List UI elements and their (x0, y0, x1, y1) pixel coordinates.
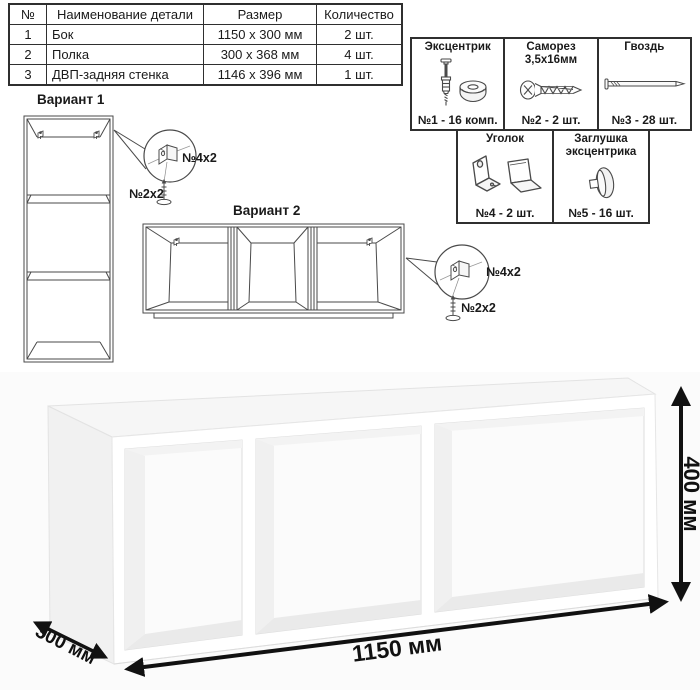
screw-detail-icon (157, 180, 171, 205)
part-number: 1 (9, 25, 47, 45)
screw-detail-icon (446, 296, 460, 321)
hardware-title-line2: эксцентрика (566, 146, 637, 159)
photo-background (0, 372, 700, 690)
corner-bracket-detail-icon (159, 145, 177, 164)
hardware-count: №4 - 2 шт. (476, 207, 535, 220)
variant2-screw-label: №2х2 (461, 301, 496, 315)
hardware-cell-screw: Саморез 3,5х16мм №2 - 2 шт. (503, 37, 598, 131)
width-dimension-label: 1150 мм (351, 629, 444, 666)
hanger-bracket-icon (38, 131, 99, 139)
variant2-callout (406, 245, 489, 321)
part-number: 3 (9, 65, 47, 86)
cam-cap-icon (571, 158, 631, 207)
hardware-cell-cam-fitting: Эксцентрик (410, 37, 505, 131)
table-header-row: № Наименование детали Размер Количество (9, 4, 402, 25)
part-size: 1146 х 396 мм (204, 65, 317, 86)
hardware-cell-corner-bracket: Уголок №4 - 2 шт. (456, 129, 554, 224)
table-row: 1 Бок 1150 х 300 мм 2 шт. (9, 25, 402, 45)
hardware-title: Заглушка эксцентрика (566, 133, 637, 158)
variant1-bracket-label: №4х2 (182, 151, 217, 165)
cam-fitting-icon (420, 54, 496, 115)
col-header-size: Размер (204, 4, 317, 25)
dimension-width-arrow (128, 602, 665, 669)
hardware-count: №5 - 16 шт. (568, 207, 634, 220)
part-size: 1150 х 300 мм (204, 25, 317, 45)
parts-table: № Наименование детали Размер Количество … (8, 3, 403, 86)
hardware-title-line1: Саморез (525, 41, 577, 54)
variant2-bracket-label: №4х2 (486, 265, 521, 279)
table-row: 2 Полка 300 х 368 мм 4 шт. (9, 45, 402, 65)
horizontal-shelf-outline (143, 224, 404, 318)
height-dimension-label: 400 мм (679, 456, 700, 531)
screw-icon (515, 66, 587, 114)
hardware-title: Саморез 3,5х16мм (525, 41, 577, 66)
hardware-title: Гвоздь (624, 41, 664, 54)
hardware-count: №2 - 2 шт. (522, 114, 581, 127)
assembly-instruction-sheet: № Наименование детали Размер Количество … (0, 0, 700, 690)
hardware-box-row1: Эксцентрик (410, 37, 692, 131)
corner-bracket-detail-icon (451, 261, 469, 280)
part-name: Бок (47, 25, 204, 45)
compartment (435, 408, 644, 612)
corner-bracket-icon (464, 146, 546, 208)
part-qty: 2 шт. (317, 25, 403, 45)
shelf-3d-render: 1150 мм 400 мм 300 мм (0, 372, 700, 690)
part-size: 300 х 368 мм (204, 45, 317, 65)
part-number: 2 (9, 45, 47, 65)
dimension-depth-arrow (36, 623, 105, 657)
col-header-name: Наименование детали (47, 4, 204, 25)
shelf-body (48, 378, 658, 664)
hardware-title: Уголок (486, 133, 524, 146)
part-name: ДВП-задняя стенка (47, 65, 204, 86)
part-qty: 1 шт. (317, 65, 403, 86)
hardware-cell-nail: Гвоздь №3 - 28 шт. (597, 37, 692, 131)
variant2-title: Вариант 2 (233, 203, 300, 218)
hardware-count: №1 - 16 комп. (418, 114, 498, 127)
variant1-screw-label: №2х2 (129, 187, 164, 201)
table-row: 3 ДВП-задняя стенка 1146 х 396 мм 1 шт. (9, 65, 402, 86)
compartment (125, 440, 242, 650)
variant1-title: Вариант 1 (37, 92, 104, 107)
variant1-callout (114, 130, 196, 205)
hardware-box-row2: Уголок №4 - 2 шт. (456, 129, 650, 224)
depth-dimension-label: 300 мм (32, 621, 100, 669)
hardware-cell-cam-cap: Заглушка эксцентрика №5 - 16 шт. (552, 129, 650, 224)
vertical-shelf-outline (24, 116, 113, 362)
hardware-title: Эксцентрик (425, 41, 491, 54)
hardware-title-line2: 3,5х16мм (525, 54, 577, 67)
hardware-title-line1: Заглушка (566, 133, 637, 146)
variant1-drawing: №4х2 №2х2 (15, 92, 235, 377)
col-header-qty: Количество (317, 4, 403, 25)
compartment (256, 426, 421, 634)
hanger-bracket-icon (174, 238, 372, 246)
hardware-count: №3 - 28 шт. (612, 114, 678, 127)
part-qty: 4 шт. (317, 45, 403, 65)
nail-icon (602, 54, 686, 115)
part-name: Полка (47, 45, 204, 65)
col-header-num: № (9, 4, 47, 25)
